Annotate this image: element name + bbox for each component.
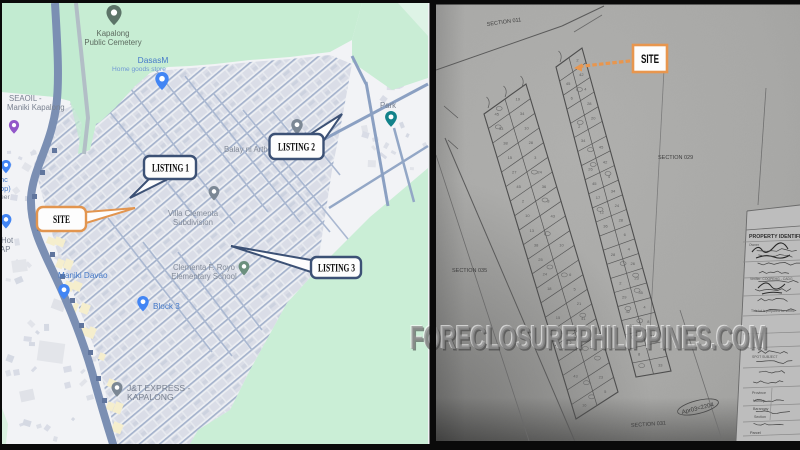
svg-text:29: 29 <box>622 295 627 300</box>
svg-text:38: 38 <box>534 242 539 247</box>
svg-text:SECTION 035: SECTION 035 <box>452 268 487 274</box>
svg-text:16: 16 <box>582 403 587 408</box>
svg-text:LISTING 1: LISTING 1 <box>152 163 189 175</box>
svg-text:20: 20 <box>591 116 596 121</box>
svg-text:Public Cemetery: Public Cemetery <box>84 38 141 47</box>
svg-text:LISTING 3: LISTING 3 <box>318 263 355 275</box>
svg-text:45: 45 <box>566 81 571 86</box>
svg-text:Owner: Owner <box>749 243 760 247</box>
svg-text:Verifier: COOPEHG - CADG: Verifier: COOPEHG - CADG <box>750 277 793 281</box>
svg-text:34: 34 <box>611 188 616 193</box>
svg-text:10: 10 <box>559 243 564 248</box>
svg-text:33: 33 <box>658 363 663 368</box>
svg-text:SECTION 029: SECTION 029 <box>658 155 693 161</box>
svg-text:Barangay: Barangay <box>753 407 769 411</box>
svg-text:34: 34 <box>581 138 586 143</box>
svg-text:Parcel: Parcel <box>750 431 761 435</box>
svg-text:25: 25 <box>538 257 543 262</box>
svg-text:Maniki Kapalong: Maniki Kapalong <box>7 103 65 112</box>
svg-text:Kapalong: Kapalong <box>97 29 130 38</box>
svg-text:36: 36 <box>603 224 608 229</box>
svg-text:28: 28 <box>611 252 616 257</box>
svg-text:Home goods store: Home goods store <box>112 66 166 73</box>
svg-text:SITE: SITE <box>641 52 659 66</box>
svg-text:DasasM: DasasM <box>138 55 169 65</box>
svg-text:10: 10 <box>525 213 530 218</box>
svg-text:SITE: SITE <box>53 212 70 226</box>
svg-text:38: 38 <box>503 140 508 145</box>
svg-text:28: 28 <box>529 140 534 145</box>
svg-text:43: 43 <box>573 373 578 378</box>
svg-text:43: 43 <box>550 213 555 218</box>
svg-text:28: 28 <box>619 217 624 222</box>
svg-text:45: 45 <box>599 145 604 150</box>
svg-text:15: 15 <box>508 155 513 160</box>
svg-text:Balay ni Arth: Balay ni Arth <box>224 145 268 154</box>
svg-text:Villa Clementa: Villa Clementa <box>168 209 219 218</box>
svg-text:Municip: Municip <box>753 399 765 403</box>
svg-text:FORECLOSUREPHILIPPINES.COM: FORECLOSUREPHILIPPINES.COM <box>410 319 767 356</box>
svg-text:Clementa F. Royo: Clementa F. Royo <box>173 263 236 272</box>
svg-text:36: 36 <box>542 184 547 189</box>
svg-text:This lot is prepared for verif: This lot is prepared for verific <box>751 309 795 313</box>
svg-text:PROPERTY IDENTIFICA: PROPERTY IDENTIFICA <box>749 234 800 240</box>
svg-text:10: 10 <box>524 126 529 131</box>
svg-text:26: 26 <box>630 261 635 266</box>
svg-text:27: 27 <box>512 170 517 175</box>
svg-text:45: 45 <box>592 181 597 186</box>
svg-text:28: 28 <box>587 101 592 106</box>
svg-text:LISTING 2: LISTING 2 <box>278 142 315 154</box>
svg-text:Subdivision: Subdivision <box>173 218 213 227</box>
svg-text:26: 26 <box>588 167 593 172</box>
svg-text:45: 45 <box>516 184 521 189</box>
svg-text:13: 13 <box>529 228 534 233</box>
svg-text:21: 21 <box>577 301 582 306</box>
svg-text:KAPALONG: KAPALONG <box>127 392 174 402</box>
svg-text:12: 12 <box>600 209 605 214</box>
svg-text:Maniki Davao: Maniki Davao <box>58 271 108 280</box>
svg-text:17: 17 <box>596 195 601 200</box>
svg-text:23: 23 <box>634 276 639 281</box>
svg-text:SEAOIL -: SEAOIL - <box>9 94 42 103</box>
svg-text:24: 24 <box>543 271 548 276</box>
svg-text:42: 42 <box>579 72 584 77</box>
svg-text:19: 19 <box>515 96 520 101</box>
svg-text:42: 42 <box>603 159 608 164</box>
svg-text:18: 18 <box>547 286 552 291</box>
svg-text:24: 24 <box>537 170 542 175</box>
svg-text:23: 23 <box>599 374 604 379</box>
svg-text:Section: Section <box>754 415 766 419</box>
svg-text:33: 33 <box>499 126 504 131</box>
svg-text:Hot: Hot <box>1 236 14 245</box>
svg-text:35: 35 <box>638 290 643 295</box>
svg-text:24: 24 <box>615 203 620 208</box>
svg-text:Province: Province <box>752 391 766 395</box>
svg-text:34: 34 <box>520 111 525 116</box>
svg-text:45: 45 <box>494 111 499 116</box>
svg-text:Block 3: Block 3 <box>153 302 180 311</box>
svg-text:Park: Park <box>380 101 396 110</box>
svg-text:Elementary School: Elementary School <box>171 272 237 281</box>
